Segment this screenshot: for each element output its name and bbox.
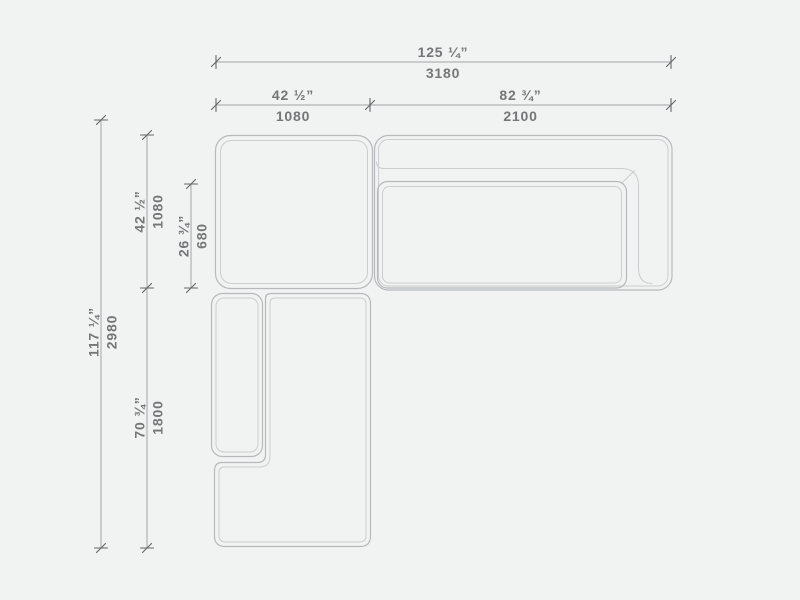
dim-total-width-inches: 125 ¼” bbox=[418, 44, 469, 60]
dim-seat-depth-mm: 680 bbox=[194, 223, 210, 249]
dim-corner-depth-mm: 1080 bbox=[150, 194, 166, 228]
sofa-module-inner-outline bbox=[379, 140, 669, 287]
dim-left-width-inches: 42 ½” bbox=[272, 87, 314, 103]
dim-chaise-depth-inches: 70 ¾” bbox=[132, 396, 148, 438]
dim-corner-depth-inches: 42 ½” bbox=[132, 190, 148, 232]
drawing-canvas: 125 ¼” 3180 42 ½” 1080 82 ¾” 2100 117 ¼”… bbox=[0, 0, 800, 600]
dimension-labels: 125 ¼” 3180 42 ½” 1080 82 ¾” 2100 117 ¼”… bbox=[86, 44, 542, 439]
dim-right-width-inches: 82 ¾” bbox=[499, 87, 541, 103]
sofa-seat-cushion-outer bbox=[378, 182, 627, 289]
sofa-module-outer-outline bbox=[375, 136, 673, 291]
sofa-dimension-drawing: 125 ¼” 3180 42 ½” 1080 82 ¾” 2100 117 ¼”… bbox=[0, 0, 800, 600]
dimension-tick-slashes bbox=[97, 58, 676, 553]
sofa-plan bbox=[212, 136, 673, 547]
dim-total-width-mm: 3180 bbox=[426, 65, 460, 81]
dim-total-depth-inches: 117 ¼” bbox=[86, 307, 102, 357]
dim-seat-depth-inches: 26 ¾” bbox=[176, 215, 192, 257]
sofa-backrest-armrest-edge bbox=[377, 162, 653, 284]
dimension-lines bbox=[95, 56, 676, 553]
chaise-armrest-outer-outline bbox=[212, 294, 263, 457]
dim-total-depth-mm: 2980 bbox=[104, 315, 120, 349]
sofa-corner-seam-line bbox=[622, 171, 635, 184]
corner-module-outer-outline bbox=[216, 136, 373, 289]
dim-chaise-depth-mm: 1800 bbox=[150, 400, 166, 434]
sofa-seat-cushion-inner bbox=[383, 187, 622, 284]
corner-module-inner-outline bbox=[221, 141, 368, 284]
dimension-tick-bars bbox=[95, 56, 672, 549]
dim-right-width-mm: 2100 bbox=[503, 108, 537, 124]
dim-left-width-mm: 1080 bbox=[276, 108, 310, 124]
